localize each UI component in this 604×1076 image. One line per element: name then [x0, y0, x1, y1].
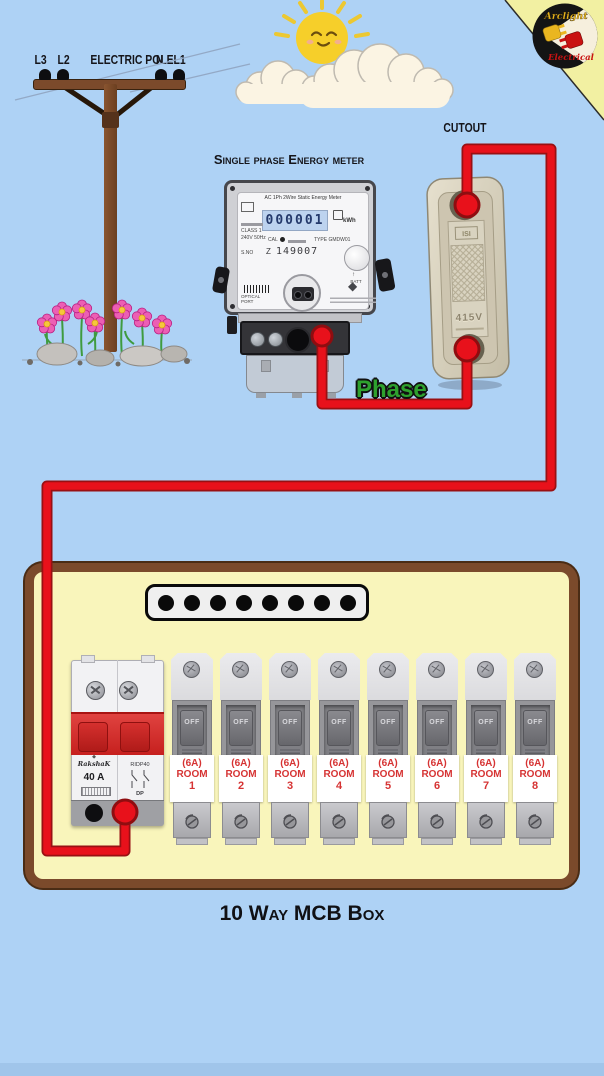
mcb-room-text: ROOM: [317, 769, 361, 780]
clamp-screw-icon: [379, 813, 397, 829]
mcb-room-text: ROOM: [464, 769, 508, 780]
mcb-switch-state: OFF: [233, 719, 249, 726]
insulator: [173, 69, 185, 80]
mcb-room-text: ROOM: [513, 769, 557, 780]
mcb-switch-section: OFF: [368, 700, 408, 762]
mcb-room-label: (6A) ROOM 2: [219, 755, 263, 802]
mcb-room-label: (6A) ROOM 6: [415, 755, 459, 802]
main-breaker-rating: 40 A: [74, 772, 114, 783]
mcb-toggle: OFF: [376, 710, 400, 746]
meter-company-text: [330, 295, 376, 303]
screw-icon: [232, 661, 249, 678]
mcb-switch-section: OFF: [515, 700, 555, 762]
mcb-foot: [519, 838, 551, 845]
mcb-room-label: (6A) ROOM 5: [366, 755, 410, 802]
mcb-terminal-section: [173, 802, 211, 838]
mcb-amp-rating: (6A): [170, 755, 214, 769]
mcb-breaker: OFF (6A) ROOM 6: [415, 653, 459, 845]
mcb-toggle: OFF: [327, 710, 351, 746]
screw-icon: [379, 661, 396, 678]
screw-icon: [281, 661, 298, 678]
mcb-room-text: ROOM: [170, 769, 214, 780]
mcb-room-number: 1: [170, 780, 214, 792]
mcb-switch-state: OFF: [184, 719, 200, 726]
main-breaker-tab: [141, 655, 155, 663]
mcb-breaker: OFF (6A) ROOM 4: [317, 653, 361, 845]
mcb-toggle: OFF: [425, 710, 449, 746]
mcb-room-number: 2: [219, 780, 263, 792]
meter-type-label: TYPE GMDW01: [314, 237, 350, 243]
mcb-switch-section: OFF: [172, 700, 212, 762]
mcb-switch-state: OFF: [331, 719, 347, 726]
insulator: [57, 69, 69, 80]
clamp-screw-icon: [183, 813, 201, 829]
mcb-room-number: 3: [268, 780, 312, 792]
mcb-room-label: (6A) ROOM 1: [170, 755, 214, 802]
cutout-label: CUTOUT: [443, 120, 486, 135]
mcb-terminal-section: [418, 802, 456, 838]
mcb-terminal-section: [271, 802, 309, 838]
mcb-amp-rating: (6A): [219, 755, 263, 769]
mcb-amp-rating: (6A): [268, 755, 312, 769]
main-breaker-toggle: [120, 722, 150, 752]
logo-text-bottom: Electrical: [547, 53, 595, 63]
main-breaker-neutral-terminal: [85, 804, 103, 822]
clamp-screw-icon: [428, 813, 446, 829]
mcb-room-number: 7: [464, 780, 508, 792]
main-breaker-brand: RakshaK: [74, 760, 114, 768]
screw-icon: [526, 661, 543, 678]
mcb-room-text: ROOM: [219, 769, 263, 780]
mcb-terminal-section: [320, 802, 358, 838]
energy-meter: AC 1Ph 2Wire Static Energy Meter 000001 …: [224, 180, 376, 315]
main-breaker-poles: DP: [119, 791, 161, 797]
insulator: [155, 69, 167, 80]
busbar-hole: [288, 595, 304, 611]
illustration-canvas: Arclight Electrical L3 L2 ELECTRIC POLE …: [0, 0, 604, 1076]
mcb-room-label: (6A) ROOM 7: [464, 755, 508, 802]
busbar-hole: [236, 595, 252, 611]
mcb-switch-section: OFF: [221, 700, 261, 762]
mcb-room-number: 4: [317, 780, 361, 792]
meter-mount-tab: [212, 266, 230, 294]
screw-icon: [86, 681, 105, 700]
mcb-foot: [176, 838, 208, 845]
main-breaker-toggle: [78, 722, 108, 752]
meter-face: AC 1Ph 2Wire Static Energy Meter 000001 …: [237, 192, 369, 310]
mcb-switch-state: OFF: [478, 719, 494, 726]
mcb-toggle: OFF: [229, 710, 253, 746]
mcb-room-text: ROOM: [415, 769, 459, 780]
main-breaker: ◆ RakshaK 40 A RIDP40 DP: [71, 660, 164, 826]
meter-maker-mark: [241, 202, 254, 212]
busbar-hole: [210, 595, 226, 611]
busbar-hole: [314, 595, 330, 611]
meter-reset-button: [344, 245, 370, 271]
meter-optical-port: [283, 274, 321, 312]
meter-cal-led: [280, 237, 285, 242]
mcb-foot: [470, 838, 502, 845]
mcb-terminal-section: [369, 802, 407, 838]
mcb-switch-state: OFF: [380, 719, 396, 726]
mcb-switch-section: OFF: [319, 700, 359, 762]
logo-text-top: Arclight: [543, 11, 588, 22]
mcb-foot: [372, 838, 404, 845]
mcb-breaker: OFF (6A) ROOM 2: [219, 653, 263, 845]
circuit-symbol-icon: [127, 770, 153, 790]
phase-wire-label: Phase: [356, 376, 427, 404]
clamp-screw-icon: [281, 813, 299, 829]
meter-spec-column: CLASS 1 240V 50Hz: [241, 221, 266, 242]
meter-header-text: AC 1Ph 2Wire Static Energy Meter: [238, 195, 368, 201]
meter-reading: 000001: [266, 213, 325, 228]
mcb-amp-rating: (6A): [366, 755, 410, 769]
clamp-screw-icon: [232, 813, 250, 829]
clamp-screw-icon: [526, 813, 544, 829]
screw-icon: [183, 661, 200, 678]
mcb-foot: [274, 838, 306, 845]
meter-title: Single phase Energy meter: [198, 152, 380, 167]
mcb-foot: [323, 838, 355, 845]
screw-icon: [428, 661, 445, 678]
main-breaker-spec-box: [81, 787, 111, 796]
mcb-breaker: OFF (6A) ROOM 3: [268, 653, 312, 845]
main-breaker-tab: [81, 655, 95, 663]
meter-cover-tab: [256, 393, 266, 398]
meter-lcd: 000001: [262, 210, 328, 231]
meter-terminal-cover: [246, 355, 344, 393]
flowers-rocks-decoration: [22, 288, 192, 372]
bottom-edge-strip: [0, 1063, 604, 1076]
mcb-room-text: ROOM: [366, 769, 410, 780]
cutout-voltage-mark: 415V: [456, 312, 484, 324]
pole-collar: [102, 112, 119, 128]
meter-cover-tab: [326, 393, 336, 398]
clamp-screw-icon: [330, 813, 348, 829]
mcb-room-label: (6A) ROOM 4: [317, 755, 361, 802]
mcb-terminal-section: [222, 802, 260, 838]
screw-icon: [477, 661, 494, 678]
mcb-room-number: 8: [513, 780, 557, 792]
mcb-room-text: ROOM: [268, 769, 312, 780]
meter-cal-label: CAL: [268, 237, 278, 243]
main-breaker-model: RIDP40: [119, 762, 161, 768]
meter-terminal-knockout: [285, 327, 311, 353]
mcb-amp-rating: (6A): [415, 755, 459, 769]
meter-mount-tab: [374, 258, 395, 292]
meter-optical-label: OPTICALPORT: [241, 294, 260, 304]
screw-icon: [119, 681, 138, 700]
mcb-foot: [225, 838, 257, 845]
mcb-switch-section: OFF: [466, 700, 506, 762]
meter-batt-arrow: ↑: [352, 272, 355, 278]
mcb-breaker: OFF (6A) ROOM 7: [464, 653, 508, 845]
mcb-amp-rating: (6A): [464, 755, 508, 769]
meter-indicator-square: [333, 210, 343, 220]
mcb-terminal-section: [516, 802, 554, 838]
mcb-switch-state: OFF: [282, 719, 298, 726]
mcb-switch-section: OFF: [270, 700, 310, 762]
meter-terminal-ear: [227, 316, 237, 334]
busbar-hole: [262, 595, 278, 611]
box-caption: 10 Way MCB Box: [0, 902, 604, 926]
neutral-busbar: [145, 584, 369, 621]
mcb-foot: [421, 838, 453, 845]
mcb-room-number: 5: [366, 780, 410, 792]
mcb-room-label: (6A) ROOM 8: [513, 755, 557, 802]
meter-serial-prefix: Z: [266, 247, 271, 256]
mcb-toggle: OFF: [474, 710, 498, 746]
mcb-breaker: OFF (6A) ROOM 5: [366, 653, 410, 845]
screw-icon: [330, 661, 347, 678]
mcb-room-label: (6A) ROOM 3: [268, 755, 312, 802]
meter-barcode: [244, 285, 270, 293]
mcb-toggle: OFF: [278, 710, 302, 746]
busbar-hole: [184, 595, 200, 611]
cutout-fuse: ISI 415V 415V: [410, 163, 560, 395]
insulator: [39, 69, 51, 80]
mcb-terminal-section: [467, 802, 505, 838]
meter-cover-tab: [292, 393, 302, 398]
meter-brand-diamond: ◆: [348, 279, 357, 293]
busbar-hole: [158, 595, 174, 611]
meter-unit: kWh: [343, 218, 356, 224]
busbar-hole: [340, 595, 356, 611]
meter-sno-label: S.NO: [241, 250, 253, 256]
mcb-breaker: OFF (6A) ROOM 1: [170, 653, 214, 845]
mcb-amp-rating: (6A): [513, 755, 557, 769]
mcb-amp-rating: (6A): [317, 755, 361, 769]
cutout-isi-mark: ISI: [462, 231, 471, 238]
mcb-switch-state: OFF: [527, 719, 543, 726]
mcb-room-number: 6: [415, 780, 459, 792]
mcb-toggle: OFF: [180, 710, 204, 746]
mcb-switch-section: OFF: [417, 700, 457, 762]
mcb-breaker: OFF (6A) ROOM 8: [513, 653, 557, 845]
mcb-toggle: OFF: [523, 710, 547, 746]
clamp-screw-icon: [477, 813, 495, 829]
mcb-switch-state: OFF: [429, 719, 445, 726]
meter-serial: 149007: [276, 246, 318, 257]
